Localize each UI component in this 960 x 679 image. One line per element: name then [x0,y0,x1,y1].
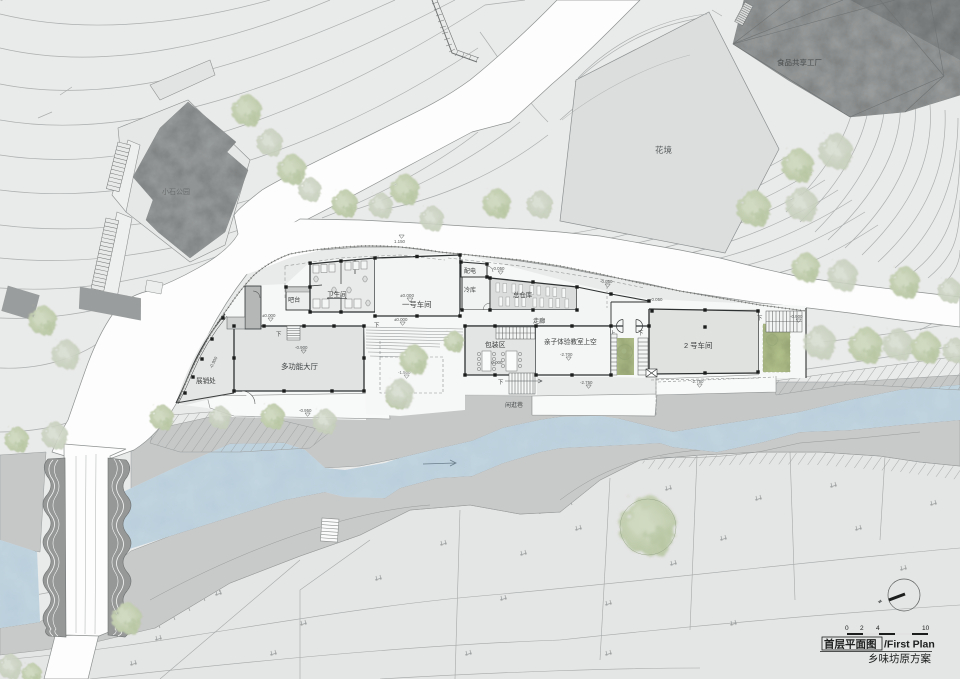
svg-text:-2.750: -2.750 [691,379,704,384]
svg-text:±0.000: ±0.000 [400,293,414,298]
svg-text:0: 0 [845,625,849,632]
svg-text:配电: 配电 [464,267,476,275]
svg-text:一号车间: 一号车间 [402,300,432,309]
svg-text:小石公园: 小石公园 [162,187,190,196]
svg-text:吧台: 吧台 [288,296,300,304]
svg-text:亲子体验教室上空: 亲子体验教室上空 [544,337,597,346]
svg-text:走廊: 走廊 [533,317,545,325]
svg-text:10: 10 [922,625,930,632]
svg-text:±0.000: ±0.000 [394,317,408,322]
svg-text:4: 4 [876,625,880,632]
svg-text:-0.950: -0.950 [299,408,312,413]
svg-text:-2.750: -2.750 [580,380,593,385]
svg-text:下: 下 [498,379,504,386]
svg-text:首层平面图: 首层平面图 [824,638,877,651]
svg-text:1.150: 1.150 [394,239,406,244]
svg-text:-2.700: -2.700 [560,352,573,357]
svg-text:-0.900: -0.900 [790,314,803,319]
svg-text:下: 下 [374,322,380,329]
svg-text:/First Plan: /First Plan [884,639,935,651]
svg-text:乡味坊原方案: 乡味坊原方案 [868,652,931,665]
svg-text:冷库: 冷库 [464,286,476,294]
svg-text:展销处: 展销处 [196,376,216,385]
svg-text:下: 下 [276,331,282,338]
svg-text:花境: 花境 [655,145,673,155]
svg-text:2: 2 [860,625,864,632]
svg-text:-0.050: -0.050 [492,266,505,271]
svg-text:2 号车间: 2 号车间 [684,341,712,350]
svg-text:±0.000: ±0.000 [262,313,276,318]
svg-text:总仓库: 总仓库 [513,290,533,299]
svg-text:包装区: 包装区 [485,340,506,349]
svg-text:食品共享工厂: 食品共享工厂 [777,57,822,67]
svg-text:-0.900: -0.900 [295,345,308,350]
svg-text:闲逛巷: 闲逛巷 [505,401,523,409]
svg-text:卫生间: 卫生间 [327,290,347,299]
svg-text:-0.050: -0.050 [600,279,613,284]
svg-text:下: 下 [757,315,763,322]
svg-text:-0.050: -0.050 [650,297,663,302]
svg-text:下: 下 [638,330,644,337]
svg-text:多功能大厅: 多功能大厅 [281,362,319,371]
